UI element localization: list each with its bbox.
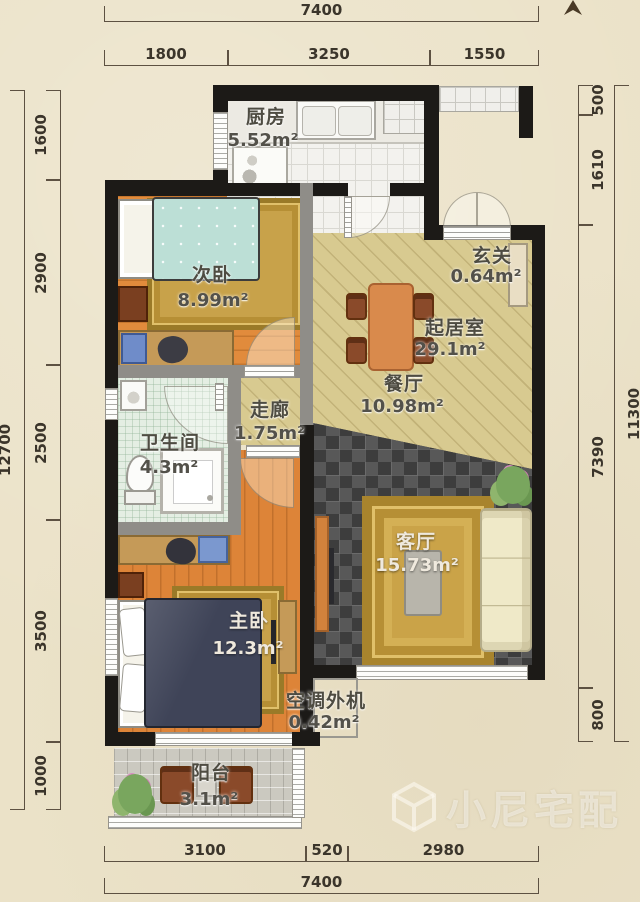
entry-door-arc	[477, 192, 511, 228]
wall	[300, 425, 314, 668]
room-area-dining-room: 10.98m²	[352, 396, 452, 417]
wall	[424, 97, 439, 240]
balcony-railing	[108, 816, 302, 829]
room-area-living-area: 29.1m²	[414, 339, 486, 360]
room-area-ac-outdoor-unit: 0.42m²	[288, 712, 360, 733]
dim-top-seg-3: 1550	[430, 50, 539, 66]
dim-left-seg-4: 3500	[46, 520, 61, 742]
dim-left-seg-2: 2900	[46, 180, 61, 365]
watermark: 小尼宅配	[390, 778, 622, 836]
entry-door-arc	[443, 192, 477, 228]
master-bedroom-window	[105, 598, 118, 676]
living-room-window	[356, 665, 528, 680]
room-label-living-area: 起居室	[408, 313, 502, 340]
plant-icon	[496, 466, 530, 504]
secondary-bedroom-chest	[121, 333, 147, 364]
wall	[292, 732, 320, 746]
balcony-sliding-door	[155, 732, 295, 746]
partition-wall	[300, 377, 313, 425]
room-area-bathroom: 4.3m²	[138, 457, 200, 478]
dim-bottom-seg-3: 2980	[348, 846, 539, 862]
dim-right-seg-3: 7390	[578, 225, 593, 688]
bathroom-door	[215, 383, 224, 411]
wall	[227, 183, 348, 196]
room-label-corridor: 走廊	[240, 395, 300, 422]
wall	[105, 732, 155, 746]
dim-right-seg-4: 800	[578, 688, 593, 742]
dim-bottom-seg-2: 520	[306, 846, 348, 862]
room-label-ac-outdoor-unit: 空调外机	[274, 686, 378, 713]
partition-wall	[300, 183, 313, 377]
balcony-plant-icon	[118, 774, 152, 814]
dining-chair	[346, 337, 367, 364]
watermark-cube-icon	[390, 781, 438, 833]
dim-right-total: 11300	[614, 85, 629, 742]
room-label-living-room: 客厅	[384, 527, 448, 554]
wall	[519, 86, 533, 138]
floor-plan: 厨房 5.52m² 次卧 8.99m² 玄关 0.64m² 起居室 29.1m²…	[0, 0, 640, 902]
tv	[329, 548, 334, 604]
dim-top-seg-1: 1800	[104, 50, 228, 66]
room-area-kitchen: 5.52m²	[224, 130, 302, 151]
dim-bottom-total: 7400	[104, 878, 539, 894]
secondary-bedroom-cabinet	[118, 286, 148, 322]
room-area-master-bedroom: 12.3m²	[210, 638, 286, 659]
dim-bottom-seg-1: 3100	[104, 846, 306, 862]
room-label-kitchen: 厨房	[234, 102, 298, 129]
master-bedroom-clothes	[198, 536, 228, 563]
north-arrow-icon	[562, 0, 584, 18]
room-area-secondary-bedroom: 8.99m²	[172, 290, 254, 311]
partition-wall	[118, 522, 229, 535]
room-label-bathroom: 卫生间	[128, 428, 212, 455]
master-bedroom-door	[246, 445, 300, 458]
dim-right-seg-2: 1610	[578, 115, 593, 225]
dim-left-seg-5: 1000	[46, 742, 61, 810]
wall	[528, 665, 545, 680]
dim-top-total: 7400	[104, 6, 539, 22]
washing-machine	[120, 380, 147, 411]
dim-left-total: 12700	[10, 90, 25, 810]
room-label-balcony: 阳台	[180, 758, 242, 785]
wall	[532, 225, 545, 680]
dim-left-seg-1: 1600	[46, 90, 61, 180]
kitchen-door	[344, 196, 352, 238]
dim-right-seg-1: 500	[578, 85, 593, 115]
room-area-living-room: 15.73m²	[374, 555, 460, 576]
wall	[390, 183, 439, 196]
master-bedroom-dresser	[278, 600, 297, 674]
room-area-balcony: 3.1m²	[178, 789, 240, 810]
room-label-dining-room: 餐厅	[372, 369, 436, 396]
dim-left-seg-3: 2500	[46, 365, 61, 520]
entry-double-door	[443, 226, 511, 240]
dining-chair	[346, 293, 367, 320]
room-label-master-bedroom: 主卧	[218, 606, 280, 633]
room-label-entryway: 玄关	[460, 241, 524, 268]
balcony-railing	[292, 748, 305, 818]
utility-cabinet-top-right	[439, 86, 519, 112]
toilet-tank	[124, 490, 156, 505]
room-area-corridor: 1.75m²	[234, 423, 304, 444]
room-area-entryway: 0.64m²	[450, 266, 522, 287]
secondary-bedroom-door	[244, 365, 295, 378]
room-label-secondary-bedroom: 次卧	[180, 260, 244, 287]
sofa	[480, 508, 532, 652]
kitchen-sink	[296, 100, 376, 140]
wall	[105, 180, 227, 196]
tv-cabinet	[315, 516, 329, 632]
bathroom-window	[105, 388, 118, 420]
watermark-text: 小尼宅配	[446, 778, 622, 836]
wall	[213, 85, 439, 101]
dim-top-seg-2: 3250	[228, 50, 430, 66]
nightstand	[118, 572, 144, 598]
